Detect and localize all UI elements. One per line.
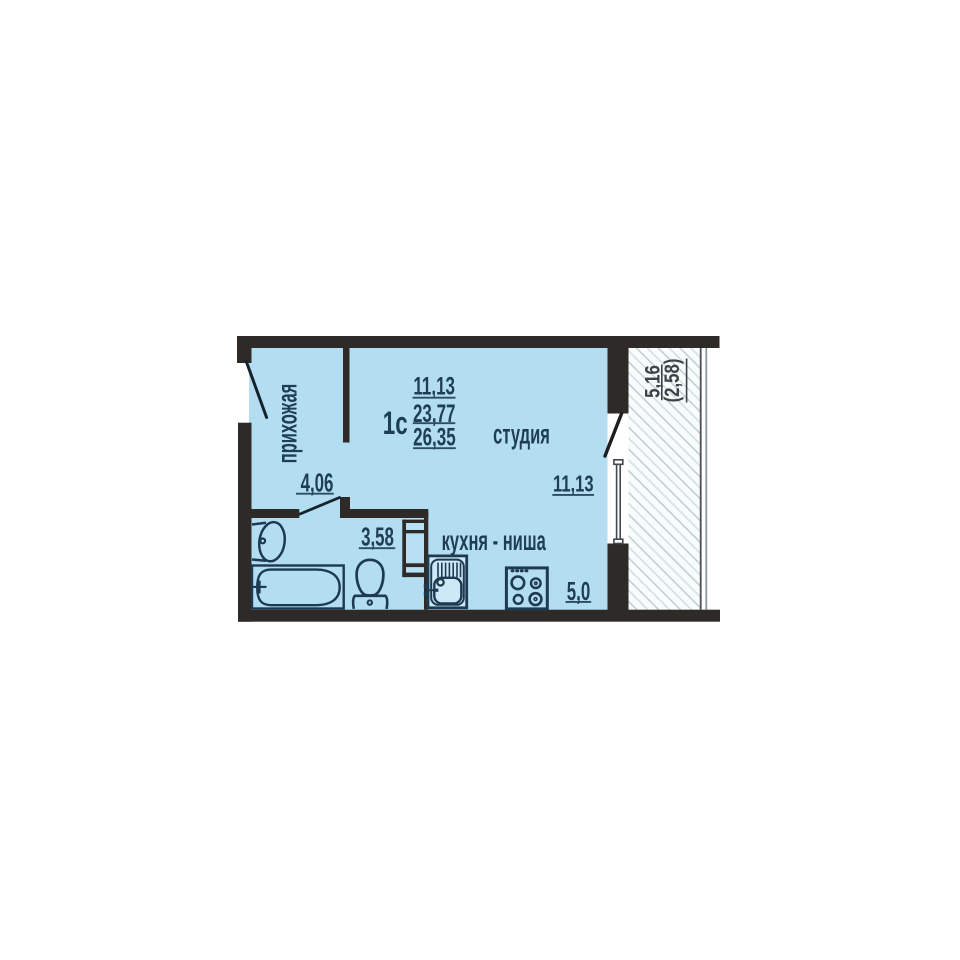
svg-text:11,13: 11,13 <box>413 372 455 400</box>
svg-text:11,13: 11,13 <box>553 472 594 497</box>
svg-text:26,35: 26,35 <box>413 423 456 451</box>
svg-text:студия: студия <box>493 418 550 450</box>
svg-text:(2,58): (2,58) <box>661 359 684 403</box>
svg-text:прихожая: прихожая <box>271 384 303 464</box>
svg-text:1с: 1с <box>383 405 408 441</box>
svg-text:кухня - ниша: кухня - ниша <box>442 524 546 556</box>
svg-text:3,58: 3,58 <box>361 522 394 552</box>
